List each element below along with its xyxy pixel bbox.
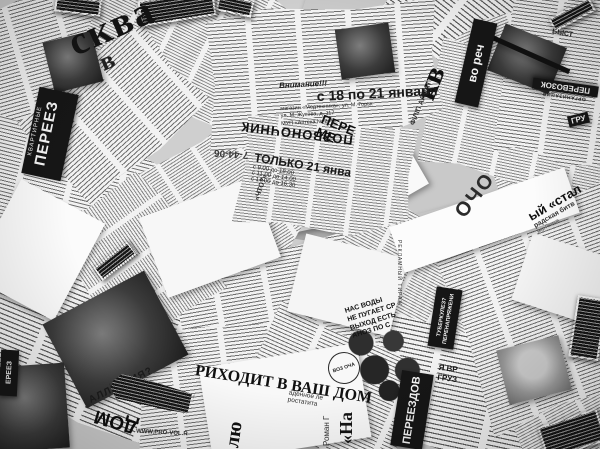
erez-text: ЕРЕЕЗ <box>5 361 13 384</box>
vorech-text: во реч <box>465 43 487 84</box>
erez-strip: ЕРЕЕЗ <box>0 350 19 397</box>
teapot-photo <box>335 22 395 79</box>
pereezdov-text: ПЕРЕЕЗДОВ <box>401 375 424 445</box>
na-headline: «На <box>336 388 357 444</box>
gruz-ad: Я ВР ГРУЗ <box>437 363 459 384</box>
phone-number: 7-44-06 <box>214 147 249 160</box>
roman-byline: Роман Г <box>322 396 331 446</box>
reklamny-tirazh-caption: РЕКЛАМНЫЙ ТИРАЖ <box>396 240 402 302</box>
newspaper-collage-photo: сква в кв ФІЛІП АЛМАТ КВАРТИРНЫЕ ПЕРЕЕЗ … <box>0 0 600 449</box>
